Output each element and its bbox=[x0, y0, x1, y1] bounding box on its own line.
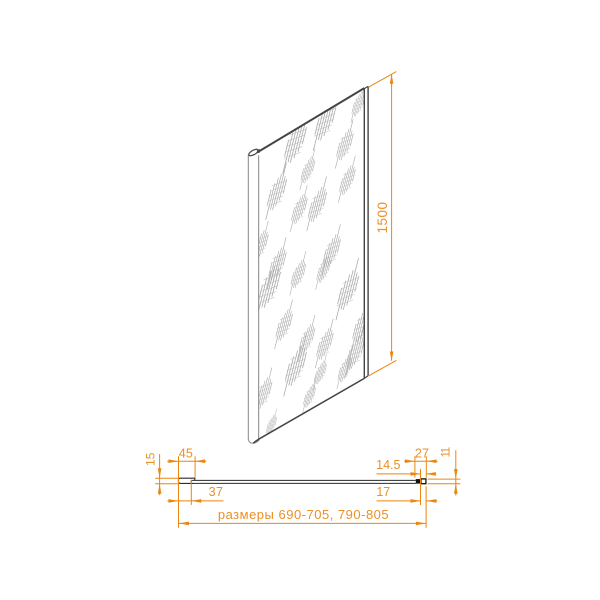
svg-text:15: 15 bbox=[144, 452, 158, 466]
svg-text:17: 17 bbox=[376, 485, 390, 499]
svg-text:размеры 690-705, 790-805: размеры 690-705, 790-805 bbox=[218, 507, 389, 522]
svg-text:37: 37 bbox=[209, 485, 224, 499]
svg-text:45: 45 bbox=[179, 446, 193, 460]
svg-text:1500: 1500 bbox=[375, 201, 390, 233]
svg-text:27: 27 bbox=[415, 446, 429, 460]
svg-text:11: 11 bbox=[441, 447, 453, 457]
svg-text:14.5: 14.5 bbox=[376, 458, 400, 472]
